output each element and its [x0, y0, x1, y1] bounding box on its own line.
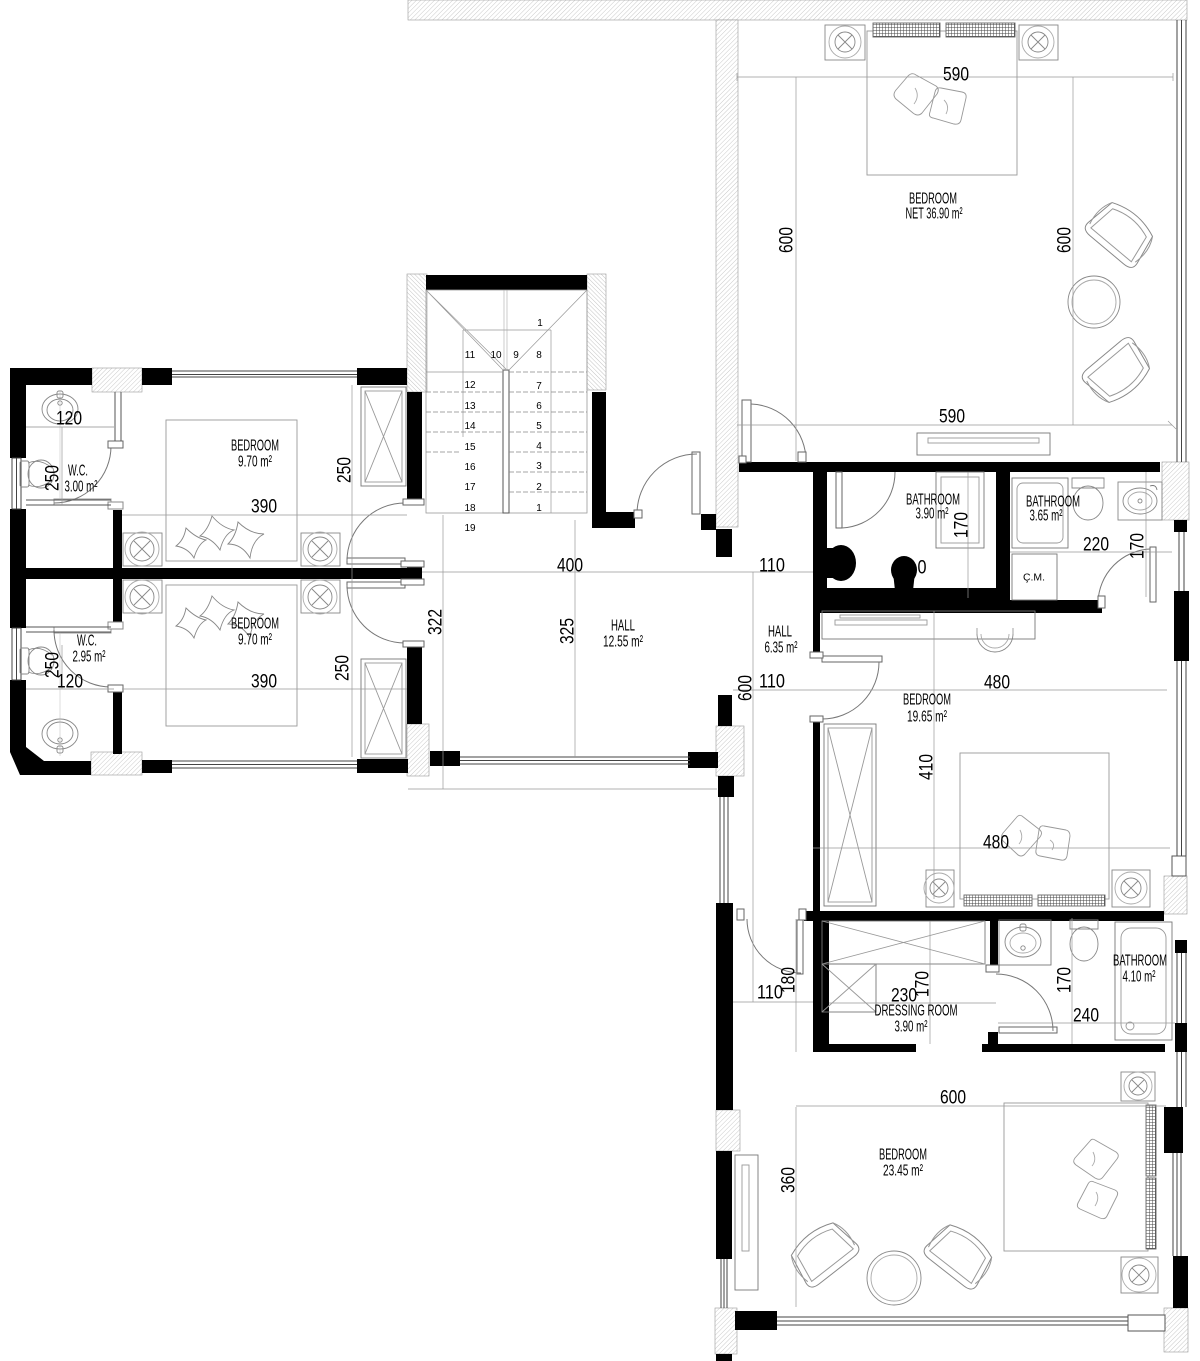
- svg-text:170: 170: [1128, 533, 1149, 559]
- svg-text:W.C.: W.C.: [77, 633, 97, 650]
- svg-text:12.55 m²: 12.55 m²: [603, 634, 643, 651]
- svg-text:BATHROOM: BATHROOM: [1113, 953, 1167, 970]
- svg-text:2.95 m²: 2.95 m²: [73, 649, 106, 666]
- svg-text:170: 170: [1055, 967, 1076, 993]
- svg-text:410: 410: [917, 754, 938, 780]
- svg-text:NET 36.90 m²: NET 36.90 m²: [906, 206, 963, 223]
- svg-text:3: 3: [536, 461, 542, 472]
- svg-text:180: 180: [779, 967, 800, 993]
- svg-text:9.70 m²: 9.70 m²: [238, 632, 272, 649]
- svg-text:15: 15: [464, 442, 476, 453]
- svg-text:250: 250: [43, 465, 64, 491]
- svg-text:2: 2: [536, 482, 542, 493]
- svg-text:6: 6: [536, 401, 542, 412]
- svg-text:3.65 m²: 3.65 m²: [1030, 508, 1063, 525]
- svg-text:480: 480: [983, 833, 1009, 854]
- svg-text:DRESSING ROOM: DRESSING ROOM: [875, 1003, 958, 1020]
- svg-text:BEDROOM: BEDROOM: [231, 438, 279, 455]
- svg-text:4: 4: [536, 441, 542, 452]
- svg-text:8: 8: [536, 350, 542, 361]
- svg-text:16: 16: [464, 462, 476, 473]
- svg-text:110: 110: [759, 672, 785, 693]
- svg-text:9.70 m²: 9.70 m²: [238, 454, 272, 471]
- svg-text:9: 9: [513, 350, 519, 361]
- svg-text:13: 13: [464, 401, 476, 412]
- svg-text:18: 18: [464, 503, 476, 514]
- svg-text:220: 220: [1083, 535, 1109, 556]
- svg-text:19: 19: [464, 523, 476, 534]
- svg-text:12: 12: [464, 380, 476, 391]
- svg-text:BEDROOM: BEDROOM: [903, 692, 951, 709]
- svg-text:3.00 m²: 3.00 m²: [65, 479, 98, 496]
- svg-text:110: 110: [759, 556, 785, 577]
- svg-text:240: 240: [1073, 1006, 1099, 1027]
- svg-text:325: 325: [558, 618, 579, 644]
- svg-text:3.90 m²: 3.90 m²: [895, 1019, 928, 1036]
- svg-text:250: 250: [43, 652, 64, 678]
- svg-text:6.35 m²: 6.35 m²: [765, 640, 798, 657]
- svg-text:4.10 m²: 4.10 m²: [1123, 969, 1156, 986]
- svg-text:600: 600: [736, 675, 757, 701]
- svg-text:BEDROOM: BEDROOM: [231, 616, 279, 633]
- svg-text:250: 250: [333, 655, 354, 681]
- svg-text:W.C.: W.C.: [68, 463, 88, 480]
- svg-text:17: 17: [464, 482, 476, 493]
- svg-text:0: 0: [918, 558, 927, 579]
- svg-text:250: 250: [335, 457, 356, 483]
- svg-text:600: 600: [1055, 227, 1076, 253]
- svg-text:10: 10: [490, 350, 502, 361]
- svg-text:1: 1: [536, 503, 542, 514]
- svg-text:390: 390: [251, 672, 277, 693]
- svg-text:600: 600: [940, 1088, 966, 1109]
- svg-text:1: 1: [537, 318, 543, 329]
- svg-text:HALL: HALL: [611, 618, 635, 635]
- svg-text:5: 5: [536, 421, 542, 432]
- svg-text:BEDROOM: BEDROOM: [879, 1147, 927, 1164]
- svg-text:600: 600: [777, 227, 798, 253]
- svg-text:3.90 m²: 3.90 m²: [916, 506, 949, 523]
- svg-text:590: 590: [943, 65, 969, 86]
- svg-text:HALL: HALL: [768, 624, 792, 641]
- svg-text:14: 14: [464, 421, 476, 432]
- svg-text:400: 400: [557, 556, 583, 577]
- svg-text:360: 360: [779, 1167, 800, 1193]
- svg-text:390: 390: [251, 497, 277, 518]
- svg-text:7: 7: [536, 381, 542, 392]
- svg-text:11: 11: [465, 350, 476, 361]
- svg-text:120: 120: [56, 409, 82, 430]
- svg-text:23.45 m²: 23.45 m²: [883, 1163, 923, 1180]
- svg-text:170: 170: [952, 512, 973, 538]
- svg-text:170: 170: [913, 971, 934, 997]
- svg-text:19.65 m²: 19.65 m²: [907, 709, 947, 726]
- svg-text:322: 322: [426, 609, 447, 635]
- svg-text:590: 590: [939, 407, 965, 428]
- svg-text:Ç.M.: Ç.M.: [1023, 573, 1045, 584]
- svg-text:480: 480: [984, 673, 1010, 694]
